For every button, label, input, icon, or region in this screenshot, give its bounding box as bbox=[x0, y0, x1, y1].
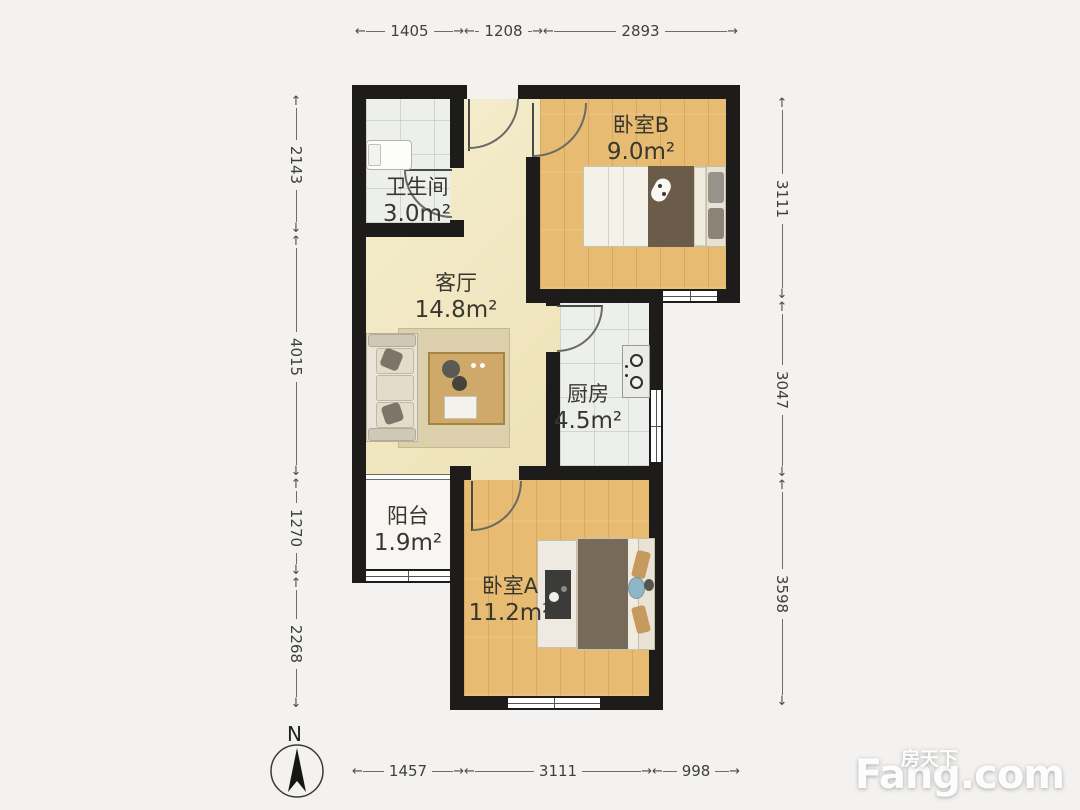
arrow-up-icon: ↑ bbox=[777, 97, 788, 110]
room-label-bedroom-a: 卧室A 11.2m² bbox=[469, 573, 552, 628]
stove-burner bbox=[630, 376, 643, 389]
watermark-cn: 房天下 bbox=[901, 744, 958, 771]
dimension-value: 3598 bbox=[773, 574, 791, 612]
room-area: 4.5m² bbox=[554, 407, 622, 436]
arrow-left-icon: ← bbox=[464, 765, 475, 778]
compass-icon bbox=[266, 742, 328, 802]
wall bbox=[519, 466, 663, 480]
wall bbox=[450, 466, 464, 710]
room-area: 11.2m² bbox=[469, 599, 552, 628]
bathtub-fitting bbox=[368, 144, 381, 166]
wall bbox=[450, 569, 464, 583]
wall bbox=[450, 99, 464, 168]
room-name: 客厅 bbox=[415, 270, 498, 296]
dimension-value: 1270 bbox=[287, 508, 305, 546]
room-name: 卧室B bbox=[607, 112, 675, 138]
stove-knob bbox=[625, 365, 628, 368]
bed-lamp bbox=[628, 577, 645, 599]
dimension-value: 998 bbox=[677, 762, 716, 780]
bed-decor bbox=[644, 579, 654, 591]
dimension-top-1: ← 1405 → bbox=[355, 22, 464, 40]
dimension-value: 2268 bbox=[287, 624, 305, 662]
arrow-left-icon: ← bbox=[464, 25, 475, 38]
bed-sheet-fold bbox=[623, 167, 624, 246]
arrow-up-icon: ↑ bbox=[777, 301, 788, 314]
arrow-up-icon: ↑ bbox=[777, 479, 788, 492]
dimension-bottom-3: ← 998 → bbox=[652, 762, 740, 780]
phone-dot bbox=[662, 192, 666, 196]
wall bbox=[717, 289, 740, 303]
arrow-right-icon: → bbox=[532, 25, 543, 38]
room-label-living-room: 客厅 14.8m² bbox=[415, 270, 498, 325]
arrow-left-icon: ← bbox=[355, 25, 366, 38]
dimension-value: 2143 bbox=[287, 146, 305, 184]
bed-blanket bbox=[648, 166, 694, 247]
arrow-right-icon: → bbox=[453, 765, 464, 778]
arrow-right-icon: → bbox=[453, 25, 464, 38]
dimension-top-2: ← 1208 → bbox=[464, 22, 543, 40]
wall bbox=[600, 696, 663, 710]
arrow-left-icon: ← bbox=[543, 25, 554, 38]
arrow-right-icon: → bbox=[727, 25, 738, 38]
table-decor-bowl bbox=[452, 376, 467, 391]
watermark: 房天下 Fang.com bbox=[855, 752, 1064, 798]
wall bbox=[352, 85, 467, 99]
bed-sheet-fold bbox=[608, 167, 609, 246]
room-label-bedroom-b: 卧室B 9.0m² bbox=[607, 112, 675, 167]
wall bbox=[526, 157, 540, 303]
room-area: 3.0m² bbox=[383, 200, 451, 229]
room-name: 阳台 bbox=[374, 503, 442, 529]
phone-dot bbox=[658, 184, 662, 188]
headboard-pillow bbox=[708, 172, 724, 203]
window bbox=[366, 569, 450, 583]
room-area: 1.9m² bbox=[374, 529, 442, 558]
dimension-bottom-2: ← 3111 → bbox=[464, 762, 652, 780]
wall bbox=[518, 85, 740, 99]
dimension-bottom-1: ← 1457 → bbox=[352, 762, 464, 780]
room-name: 厨房 bbox=[554, 381, 622, 407]
arrow-right-icon: → bbox=[729, 765, 740, 778]
arrow-up-icon: ↑ bbox=[291, 95, 302, 108]
dimension-value: 1405 bbox=[385, 22, 433, 40]
window bbox=[508, 696, 600, 710]
bed-blanket bbox=[578, 539, 628, 649]
arrow-up-icon: ↑ bbox=[291, 577, 302, 590]
table-dot bbox=[480, 363, 485, 368]
sofa-armrest bbox=[368, 428, 416, 441]
arrow-up-icon: ↑ bbox=[291, 478, 302, 491]
watermark-logo: Fang.com bbox=[855, 752, 1064, 798]
dimension-left-4: ↑ 2268 ↓ bbox=[286, 577, 306, 710]
floor-plan: 卫生间 3.0m² 卧室B 9.0m² 客厅 14.8m² 厨房 4.5m² 阳… bbox=[0, 0, 1080, 810]
room-label-kitchen: 厨房 4.5m² bbox=[554, 381, 622, 436]
dimension-value: 2893 bbox=[616, 22, 664, 40]
arrow-up-icon: ↑ bbox=[291, 235, 302, 248]
stove-knob bbox=[625, 374, 628, 377]
dimension-value: 3111 bbox=[534, 762, 582, 780]
table-tray bbox=[444, 396, 477, 419]
wardrobe-knob bbox=[561, 586, 567, 592]
dimension-value: 1208 bbox=[479, 22, 527, 40]
sofa-cushion bbox=[376, 375, 414, 401]
room-area: 14.8m² bbox=[415, 296, 498, 325]
stove bbox=[622, 345, 650, 398]
wall bbox=[649, 289, 663, 390]
window bbox=[649, 390, 663, 462]
stove-burner bbox=[630, 354, 643, 367]
arrow-left-icon: ← bbox=[652, 765, 663, 778]
wall bbox=[352, 85, 366, 583]
dimension-value: 1457 bbox=[384, 762, 432, 780]
room-area: 9.0m² bbox=[607, 138, 675, 167]
room-label-balcony: 阳台 1.9m² bbox=[374, 503, 442, 558]
wall bbox=[546, 289, 560, 306]
table-dot bbox=[471, 363, 476, 368]
dimension-right-1: ↑ 3111 ↓ bbox=[772, 97, 792, 301]
sofa-armrest bbox=[368, 334, 416, 347]
window bbox=[663, 289, 717, 303]
dimension-left-2: ↑ 4015 ↓ bbox=[286, 235, 306, 478]
bed-pillow bbox=[694, 167, 706, 246]
room-label-bathroom: 卫生间 3.0m² bbox=[383, 174, 451, 229]
dimension-value: 4015 bbox=[287, 337, 305, 375]
room-name: 卧室A bbox=[469, 573, 552, 599]
wall bbox=[726, 85, 740, 303]
dimension-left-1: ↑ 2143 ↓ bbox=[286, 95, 306, 235]
dimension-top-3: ← 2893 → bbox=[543, 22, 738, 40]
balcony-sliding-window bbox=[366, 474, 450, 480]
dimension-value: 3111 bbox=[773, 180, 791, 218]
arrow-down-icon: ↓ bbox=[291, 697, 302, 710]
floorplan-page: { "rooms": { "bedroom_b": {"name": "卧室B"… bbox=[0, 0, 1080, 810]
dimension-value: 3047 bbox=[773, 371, 791, 409]
arrow-down-icon: ↓ bbox=[777, 695, 788, 708]
headboard-pillow bbox=[708, 208, 724, 239]
dimension-left-3: ↑ 1270 ↓ bbox=[286, 478, 306, 577]
arrow-right-icon: → bbox=[641, 765, 652, 778]
arrow-left-icon: ← bbox=[352, 765, 363, 778]
dimension-right-2: ↑ 3047 ↓ bbox=[772, 301, 792, 479]
wall bbox=[450, 696, 508, 710]
room-name: 卫生间 bbox=[383, 174, 451, 200]
wall bbox=[352, 569, 366, 583]
dimension-right-3: ↑ 3598 ↓ bbox=[772, 479, 792, 708]
